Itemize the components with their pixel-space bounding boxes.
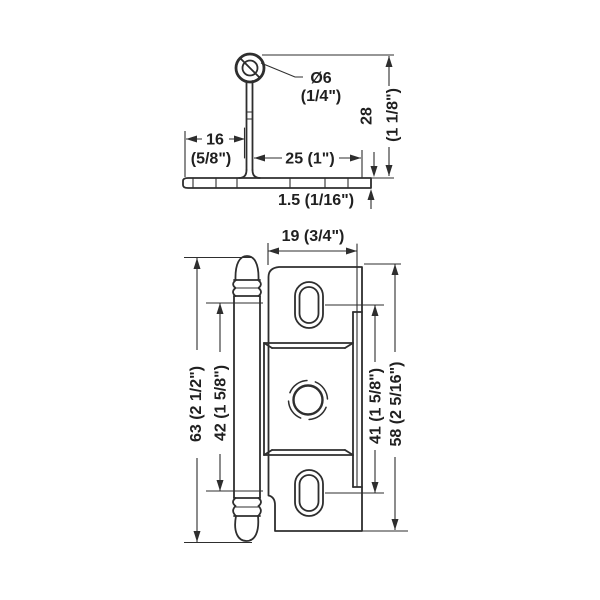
hinge-technical-drawing: Ø6 (1/4") 16 (5/8") 25 (1") 28 ( (0, 0, 600, 600)
dim-63-label: 63 (2 1/2") (188, 366, 205, 442)
dim-25-label: 25 (1") (285, 151, 334, 168)
dim-41: 41 (1 5/8") (325, 305, 385, 493)
finial-bottom (235, 516, 258, 541)
center-cup (264, 343, 353, 455)
pin-hatch-line (241, 59, 259, 77)
mounting-plate-front (269, 267, 363, 531)
leader-line-pin-diameter (261, 63, 303, 77)
plate-flange (353, 244, 362, 487)
front-view-drawing: 19 (3/4") 63 (2 1/2") 42 (1 5/8") (184, 228, 408, 543)
barrel-column (233, 256, 261, 541)
side-view-drawing: Ø6 (1/4") 16 (5/8") 25 (1") 28 ( (183, 54, 402, 209)
dim-16-in: (5/8") (191, 151, 231, 168)
dim-28-in: (1 1/8") (385, 88, 402, 142)
dim-pin-diameter-mm: Ø6 (310, 70, 331, 87)
drawing-canvas: Ø6 (1/4") 16 (5/8") 25 (1") 28 ( (0, 0, 600, 600)
dim-16-mm: 16 (206, 132, 224, 149)
dim-19: 19 (3/4") (268, 228, 357, 265)
dim-16: 16 (5/8") (185, 131, 245, 177)
mounting-plate-side (183, 178, 371, 188)
dim-1_5-label: 1.5 (1/16") (278, 192, 354, 209)
dim-19-label: 19 (3/4") (282, 228, 345, 245)
oval-slot-top (295, 282, 323, 328)
center-hole-dashed-circle (283, 375, 334, 426)
oval-slot-bottom (295, 470, 323, 516)
center-hole (294, 386, 323, 415)
dim-41-label: 41 (1 5/8") (368, 368, 385, 444)
dim-28-mm: 28 (359, 107, 376, 125)
finial-top (235, 256, 258, 280)
dim-42-label: 42 (1 5/8") (213, 365, 230, 441)
dim-pin-diameter-in: (1/4") (301, 88, 341, 105)
hinge-stem (239, 81, 260, 178)
dim-25: 25 (1") (254, 150, 362, 178)
dim-58-label: 58 (2 5/16") (388, 362, 405, 447)
